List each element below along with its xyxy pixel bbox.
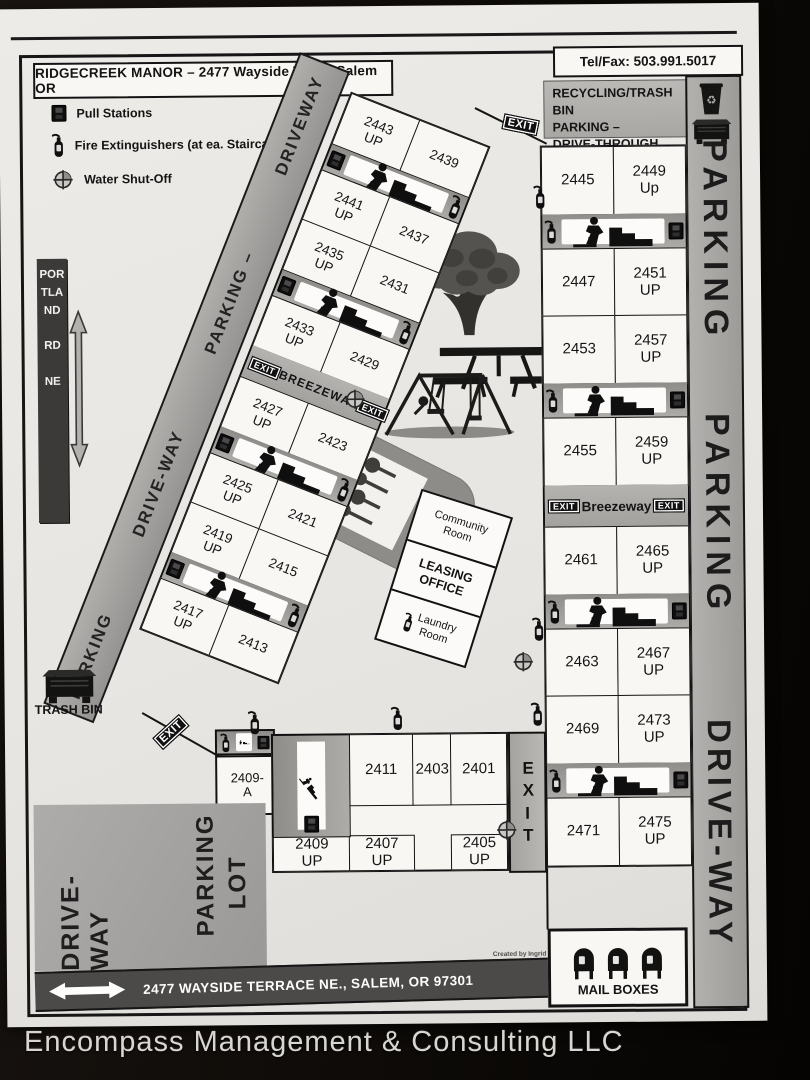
unit-2469: 2469 — [546, 695, 620, 764]
unit-pair: 2447 2451 UP — [543, 248, 687, 316]
water-shutoff-icon — [496, 819, 518, 841]
pull-station-icon — [326, 150, 346, 171]
water-shutoff-icon — [52, 169, 74, 191]
stairs-icon — [236, 734, 252, 751]
unit-2403: 2403 — [412, 734, 452, 806]
unit-pair: 2455 2459 UP — [544, 417, 688, 485]
stairs-icon — [563, 387, 666, 413]
south-building-wing: 2411 2403 2401 2409 UP 2407 UP 2405 UP — [271, 732, 509, 873]
pull-station-icon — [277, 275, 297, 296]
parking-lot-label: PARKING — [192, 813, 221, 936]
svg-text:♻: ♻ — [706, 95, 716, 107]
telfax-label: Tel/Fax: 503.991.5017 — [553, 45, 743, 78]
road-label-parking: PARKING — [697, 413, 738, 617]
unit-2409: 2409 UP — [273, 835, 351, 871]
unit-pair: 2445 2449 Up — [542, 146, 686, 214]
stairwell — [544, 382, 687, 418]
pull-station-icon — [257, 735, 269, 749]
fire-extinguisher-icon — [548, 599, 561, 624]
unit-2453: 2453 — [543, 315, 617, 384]
parking-lot-label: LOT — [224, 855, 252, 909]
fire-extinguisher-icon — [549, 768, 562, 793]
unit-2475: 2475 UP — [618, 797, 692, 866]
unit-2451: 2451 UP — [613, 248, 687, 317]
unit-2445: 2445 — [541, 146, 615, 215]
exit-sign: EXIT — [548, 499, 580, 513]
trash-bin-icon — [42, 667, 96, 705]
fire-extinguisher-icon — [531, 702, 544, 727]
unit-2461: 2461 — [544, 526, 618, 595]
unit-2457: 2457 UP — [614, 315, 688, 384]
pull-station-icon — [670, 391, 685, 408]
water-shutoff-icon — [512, 651, 534, 673]
east-building-wing: 2445 2449 Up 2447 2451 UP 2453 2457 UP 2… — [540, 144, 693, 867]
legend-label: Water Shut-Off — [84, 172, 172, 187]
mailbox-icons — [570, 942, 666, 981]
unit-2459: 2459 UP — [615, 417, 689, 486]
unit-pair: 2461 2465 UP — [545, 526, 689, 594]
stairwell — [542, 213, 685, 249]
fire-extinguisher-icon — [544, 219, 557, 244]
road-label-driveway: DRIVE-WAY — [700, 719, 740, 948]
pull-station-icon — [668, 222, 683, 239]
mailbox-icon — [570, 943, 598, 981]
pull-station-icon — [672, 602, 687, 619]
mail-boxes-station: MAIL BOXES — [548, 927, 689, 1007]
portland-rd-sign: PORTLAND RD NE — [37, 259, 69, 523]
pull-station-icon — [215, 433, 235, 454]
trash-bin-label: TRASH BIN — [35, 702, 103, 717]
fire-extinguisher-icon — [533, 185, 546, 210]
unit-2449: 2449 Up — [613, 146, 687, 215]
fire-extinguisher-icon — [220, 732, 231, 752]
stairwell — [272, 735, 350, 838]
mailbox-icon — [638, 942, 666, 980]
unit-pair: 2453 2457 UP — [543, 315, 687, 383]
management-company-name: Encompass Management & Consulting LLC — [24, 1026, 624, 1059]
street-name: 2477 WAYSIDE TERRACE NE., SALEM, OR 9730… — [143, 972, 474, 996]
pull-station-icon — [673, 771, 688, 788]
unit-2473: 2473 UP — [617, 695, 691, 764]
unit-2467: 2467 UP — [617, 628, 691, 697]
stairs-icon — [561, 218, 664, 244]
exit-sign: EXIT — [653, 498, 685, 512]
unit-2407: 2407 UP — [349, 835, 415, 871]
two-way-arrow-icon — [45, 978, 130, 1002]
laundry-room-label: Laundry Room — [412, 612, 458, 649]
exit-sign: EXIT — [247, 356, 282, 381]
unit-2463: 2463 — [545, 628, 619, 697]
recycling-parking-sign: RECYCLING/TRASH BIN PARKING – DRIVE-THRO… — [543, 79, 696, 138]
fire-extinguisher-icon — [546, 388, 559, 413]
exit-label: EXIT — [522, 758, 532, 846]
fire-extinguisher-icon — [532, 617, 545, 642]
road-label-parking: PARKING — [694, 139, 735, 343]
unit-pair: 2463 2467 UP — [546, 628, 690, 696]
unit-2401: 2401 — [450, 733, 507, 805]
breezeway: EXIT Breezeway EXIT — [545, 484, 688, 527]
recycle-bin-icon: ♻ — [696, 82, 726, 118]
road-label-driveway: DRIVE-WAY — [56, 816, 115, 971]
stairwell — [546, 593, 689, 629]
mailbox-icon — [604, 942, 632, 980]
unit-2471: 2471 — [547, 797, 621, 866]
two-way-arrow-icon — [67, 309, 90, 469]
unit-pair: 2471 2475 UP — [547, 797, 691, 865]
unit-2447: 2447 — [542, 248, 616, 317]
site-map-page: RIDGECREEK MANOR – 2477 Wayside Tr. NE S… — [0, 3, 767, 1028]
unit-2411: 2411 — [348, 734, 414, 806]
mail-boxes-label: MAIL BOXES — [578, 981, 659, 997]
credit-note: Created by Ingrid — [493, 951, 553, 959]
pull-station-icon — [304, 815, 319, 832]
legend-label: Pull Stations — [76, 105, 152, 120]
page-top-rule — [11, 31, 737, 40]
fire-extinguisher-icon — [248, 710, 261, 735]
stairwell — [547, 762, 690, 798]
unit-2455: 2455 — [543, 417, 617, 486]
stairwell — [215, 729, 275, 756]
unit-pair: 2469 2473 UP — [547, 695, 691, 763]
pull-station-icon — [51, 105, 66, 122]
stairs-icon — [566, 767, 669, 793]
pull-station-icon — [165, 558, 185, 579]
fire-extinguisher-icon — [52, 133, 65, 158]
water-shutoff-icon — [344, 388, 366, 410]
parking-lot-area: DRIVE-WAY PARKING LOT — [34, 803, 267, 971]
east-driveway-strip: ♻ PARKING PARKING DRIVE-WAY — [685, 75, 749, 1008]
fire-extinguisher-icon — [391, 706, 404, 731]
breezeway-label: Breezeway — [581, 498, 651, 514]
south-exit-corridor: EXIT — [508, 732, 547, 873]
legend-label: Fire Extinguishers (at ea. Staircase) — [75, 136, 287, 152]
unit-2465: 2465 UP — [616, 526, 690, 595]
stairs-icon — [565, 598, 668, 624]
